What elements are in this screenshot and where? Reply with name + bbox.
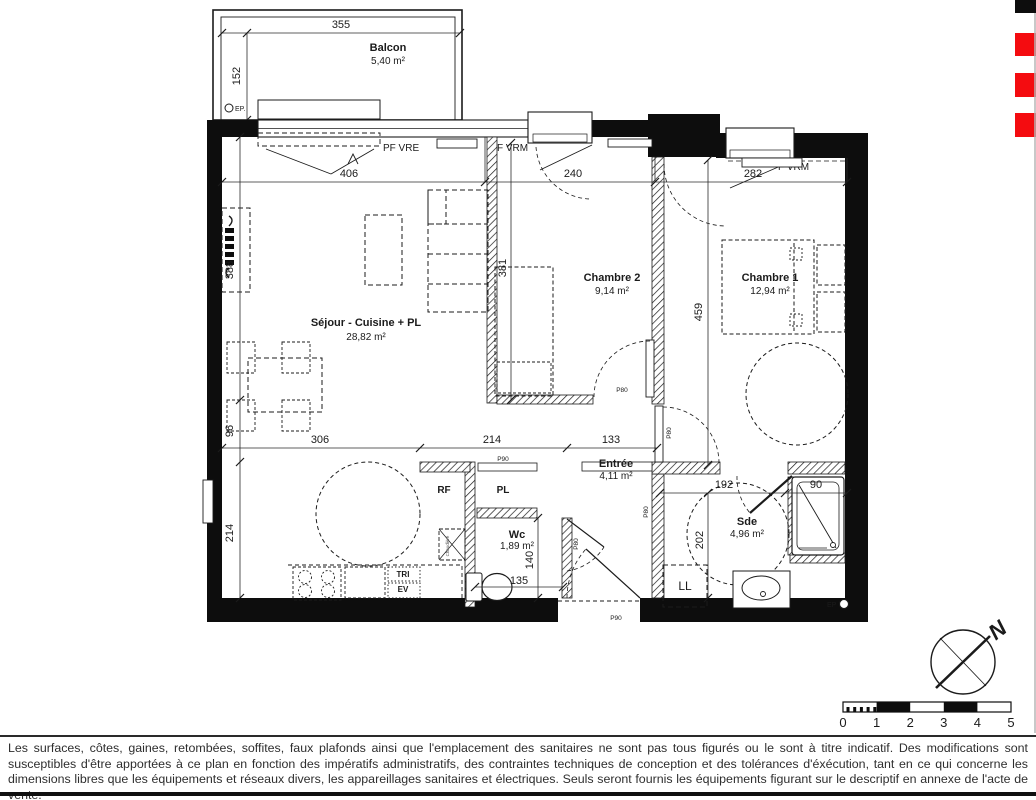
bottom-border [0, 792, 1036, 796]
dining-set [227, 342, 322, 431]
door-entrance-label: P90 [610, 615, 622, 622]
boiler [439, 529, 465, 560]
print-marks [1015, 0, 1036, 733]
door-ch1-label: P80 [666, 427, 673, 439]
scale-bar: 0 1 2 3 4 5 [839, 702, 1014, 730]
dim-balcony-width: 355 [332, 19, 350, 31]
f-vrm-ch2-label: F VRM [497, 143, 528, 154]
sejour-area-label: 28,82 m² [346, 332, 386, 343]
dim-kitchen-return: 96 [224, 425, 236, 437]
pf-vre-label: PF VRE [383, 143, 419, 154]
door-sde-label: P80 [643, 506, 650, 518]
exterior-walls [207, 114, 868, 622]
dim-wc-w: 135 [510, 575, 528, 587]
washbasin-icon [733, 571, 790, 608]
balcony-name-label: Balcon [370, 42, 407, 54]
print-mark-black [1015, 0, 1036, 13]
compass: N [931, 615, 1012, 694]
duct-icon [225, 228, 234, 265]
chambre2-name-label: Chambre 2 [584, 272, 641, 284]
sde-area-label: 4,96 m² [730, 529, 765, 540]
door-wc-label: P80 [573, 538, 580, 550]
windows: PF VRE F VRM F VRM [203, 100, 845, 523]
dim-ch1-h: 459 [693, 303, 705, 321]
scale-2: 2 [907, 715, 914, 730]
print-mark-red [1015, 33, 1036, 56]
turning-circle [746, 343, 848, 445]
closet-label: PL [497, 485, 510, 496]
dim-sde-h: 202 [694, 531, 706, 549]
ep-balcony-label: EP. [235, 106, 245, 113]
balcony-area-label: 5,40 m² [371, 56, 406, 67]
dim-hall-w: 214 [483, 434, 501, 446]
door-ch2-label: P80 [616, 387, 628, 394]
ep-sde-label: EP [827, 602, 837, 609]
radiator-icon [742, 158, 802, 167]
dim-sejour-w: 406 [340, 168, 358, 180]
door-pl-label: P90 [497, 456, 509, 463]
dim-shower-w: 90 [810, 479, 822, 491]
washer-label: LL [678, 579, 692, 593]
entree-area-label: 4,11 m² [599, 471, 633, 482]
sofa [428, 190, 488, 312]
scale-5: 5 [1007, 715, 1014, 730]
turning-circle [316, 462, 420, 566]
chambre1-area-label: 12,94 m² [750, 286, 790, 297]
floor-plan-drawing: Balcon 5,40 m² 355 152 EP. [0, 0, 1036, 735]
radiator-icon [608, 139, 652, 147]
dimension-labels: 406 240 282 388 96 214 306 214 133 192 9… [224, 168, 822, 587]
dim-sde-w: 192 [715, 479, 733, 491]
dim-sejour-h: 388 [224, 261, 236, 279]
chambre1-name-label: Chambre 1 [742, 272, 799, 284]
interior-walls [420, 137, 845, 607]
dim-ch2-w: 240 [564, 168, 582, 180]
scale-1: 1 [873, 715, 880, 730]
bed-ch2 [495, 267, 553, 396]
wc-name-label: Wc [509, 529, 526, 541]
scale-0: 0 [839, 715, 846, 730]
floor-plan-page: Balcon 5,40 m² 355 152 EP. [0, 0, 1036, 800]
dim-ch1-w: 282 [744, 168, 762, 180]
dim-wc-h: 140 [524, 551, 536, 569]
dim-entree-w: 133 [602, 434, 620, 446]
dim-balcony-depth: 152 [231, 67, 243, 85]
footer: Les surfaces, côtes, gaines, retombées, … [0, 735, 1036, 800]
dim-ch2-h: 381 [497, 259, 509, 277]
sde-name-label: Sde [737, 516, 757, 528]
entree-name-label: Entrée [599, 458, 633, 470]
chambre2-area-label: 9,14 m² [595, 286, 630, 297]
ev-label: EV [398, 585, 409, 594]
tv-cabinet [365, 215, 402, 285]
print-mark-red [1015, 73, 1036, 97]
tri-label: TRI [397, 570, 410, 579]
dim-kitchen-w: 306 [311, 434, 329, 446]
print-mark-red [1015, 113, 1036, 137]
north-label: N [983, 615, 1012, 645]
fridge-label: RF [437, 485, 450, 496]
scale-4: 4 [974, 715, 981, 730]
radiator-icon [437, 139, 477, 148]
wc-area-label: 1,89 m² [500, 541, 535, 552]
kitchen-units [288, 565, 462, 600]
dim-left-bottom-h: 214 [224, 524, 236, 542]
room-labels: Séjour - Cuisine + PL 28,82 m² Chambre 2… [311, 272, 799, 593]
sejour-name-label: Séjour - Cuisine + PL [311, 317, 422, 329]
scale-3: 3 [940, 715, 947, 730]
boiler-label: Chaudière [445, 535, 450, 556]
